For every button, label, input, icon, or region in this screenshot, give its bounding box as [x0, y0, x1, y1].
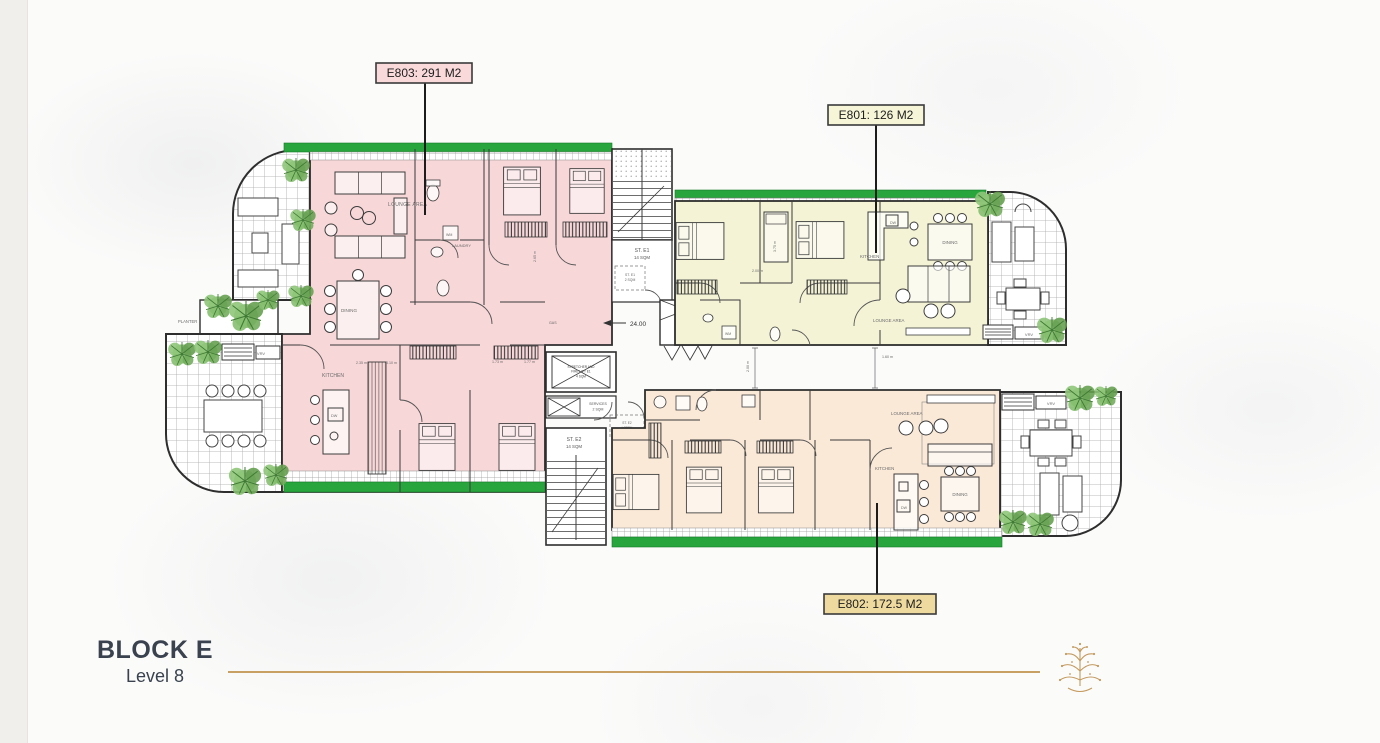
floor-plan-area: LOUNGE AREA DINING KITCHEN LAUNDRY WM DW…: [0, 0, 1380, 743]
label-vrv-yellow: VRV: [1025, 332, 1033, 337]
vrv-unit-pink: [222, 344, 280, 360]
label-gas: GAS: [549, 321, 557, 325]
plant: [1037, 317, 1067, 343]
planter-strip-bottom-peach: [612, 537, 1002, 547]
unit-e801: KITCHEN DW DINING LOUNGE AREA WM VRV 2.0…: [675, 190, 1067, 345]
label-lounge-e802: LOUNGE AREA: [891, 411, 923, 416]
vrv-unit-peach: [1002, 394, 1066, 410]
level-label: Level 8: [94, 664, 216, 688]
divider-line: [228, 671, 1040, 673]
label-lift-2: FIRE LIFT E1: [571, 370, 591, 374]
label-kitchen-e803: KITCHEN: [322, 373, 344, 379]
bed: [676, 223, 724, 260]
single-bed: [764, 212, 788, 262]
wardrobe: [807, 280, 847, 294]
bed: [499, 424, 535, 471]
wardrobe: [677, 280, 717, 294]
dim-1-77: 1.77 m: [524, 360, 535, 364]
label-vrv-peach: VRV: [1047, 401, 1055, 406]
label-services2: SERVICES: [589, 402, 607, 406]
label-planter: PLANTER: [178, 319, 197, 324]
wardrobe: [494, 346, 538, 359]
tile-band-bottom-peach: [612, 528, 1002, 537]
label-lobby-1: ST. E2: [622, 421, 632, 425]
label-dw-e802: DW: [901, 506, 908, 510]
fire-lift: STRETCHER AND FIRE LIFT E1 4 SQM: [546, 352, 616, 392]
bed: [796, 222, 844, 259]
gap-dim-lines: [752, 348, 878, 388]
label-lounge-e803: LOUNGE AREA: [388, 202, 428, 208]
block-title: BLOCK E: [94, 636, 216, 664]
tile-band-bottom-pink: [284, 471, 545, 482]
label-wm-e801: WM: [725, 332, 731, 336]
services-2sqm: SERVICES 2 SQM: [546, 396, 616, 418]
bed: [686, 467, 721, 513]
brand-tree-logo-icon: [1051, 640, 1109, 700]
label-dining-e801: DINING: [942, 240, 958, 245]
label-dining-e803: DINING: [341, 308, 358, 313]
label-dining-e802: DINING: [952, 492, 968, 497]
e802-kitchen: [894, 474, 929, 530]
bed: [758, 467, 793, 513]
bed: [613, 474, 659, 509]
label-st-e1: ST. E1: [635, 248, 650, 254]
tag-e801-label: E801: 126 M2: [839, 108, 914, 122]
stair-e2: ST. E2 14 SQM: [546, 428, 606, 545]
label-lift-area: 4 SQM: [576, 374, 586, 378]
label-kitchen-e802: KITCHEN: [875, 466, 894, 471]
wardrobe: [685, 441, 721, 453]
bed: [504, 167, 541, 215]
label-st-e1-lobby-area: 2 SQM: [625, 278, 636, 282]
dim-3-75: 3.75 m: [773, 241, 777, 252]
wardrobe: [505, 222, 547, 237]
dim-2-35: 2.35 m: [356, 361, 367, 365]
unit-e802: LOUNGE AREA KITCHEN DW DINING VRV: [612, 385, 1121, 547]
vrv-unit-yellow: [983, 325, 1043, 339]
bed: [570, 169, 604, 214]
label-kitchen-e801: KITCHEN: [860, 254, 879, 259]
dim-1-73: 1.73 m: [492, 360, 503, 364]
dim-3-10: 3.10 m: [386, 361, 397, 365]
dim-2-65: 2.65 m: [533, 251, 537, 262]
tag-e802-label: E802: 172.5 M2: [838, 597, 923, 611]
dim-1-60: 1.60 m: [882, 355, 893, 359]
label-lounge-e801: LOUNGE AREA: [873, 318, 905, 323]
dim-24: 24.00: [630, 321, 646, 328]
planter-strip-bottom-pink: [284, 482, 545, 492]
label-dw-e803: DW: [331, 414, 338, 418]
label-st-e1-area: 14 SQM: [634, 255, 650, 260]
wardrobe: [649, 423, 661, 458]
label-laundry-e803: LAUNDRY: [452, 243, 471, 248]
floor-plan-drawing: LOUNGE AREA DINING KITCHEN LAUNDRY WM DW…: [0, 0, 1380, 743]
label-st-e2-area: 14 SQM: [566, 444, 582, 449]
dim-2-00b: 2.00 m: [752, 269, 763, 273]
planter-strip-top-yellow: [675, 190, 986, 198]
tag-e803-label: E803: 291 M2: [387, 66, 462, 80]
label-lift-1: STRETCHER AND: [568, 365, 596, 369]
wardrobe: [563, 222, 607, 237]
label-dw-e801: DW: [890, 221, 897, 225]
planter-strip-top-pink: [284, 143, 612, 152]
label-st-e1-lobby: ST. E1: [625, 273, 635, 277]
bed: [419, 424, 455, 471]
label-wm-e803: WM: [446, 233, 452, 237]
wardrobe: [410, 346, 456, 359]
wardrobe: [757, 441, 793, 453]
title-block: BLOCK E Level 8: [94, 636, 216, 688]
plant: [975, 191, 1005, 217]
label-vrv-pink: VRV: [257, 351, 265, 356]
label-st-e2: ST. E2: [567, 437, 582, 443]
dim-2-00: 2.00 m: [746, 361, 750, 372]
label-services2-area: 2 SQM: [593, 408, 604, 412]
